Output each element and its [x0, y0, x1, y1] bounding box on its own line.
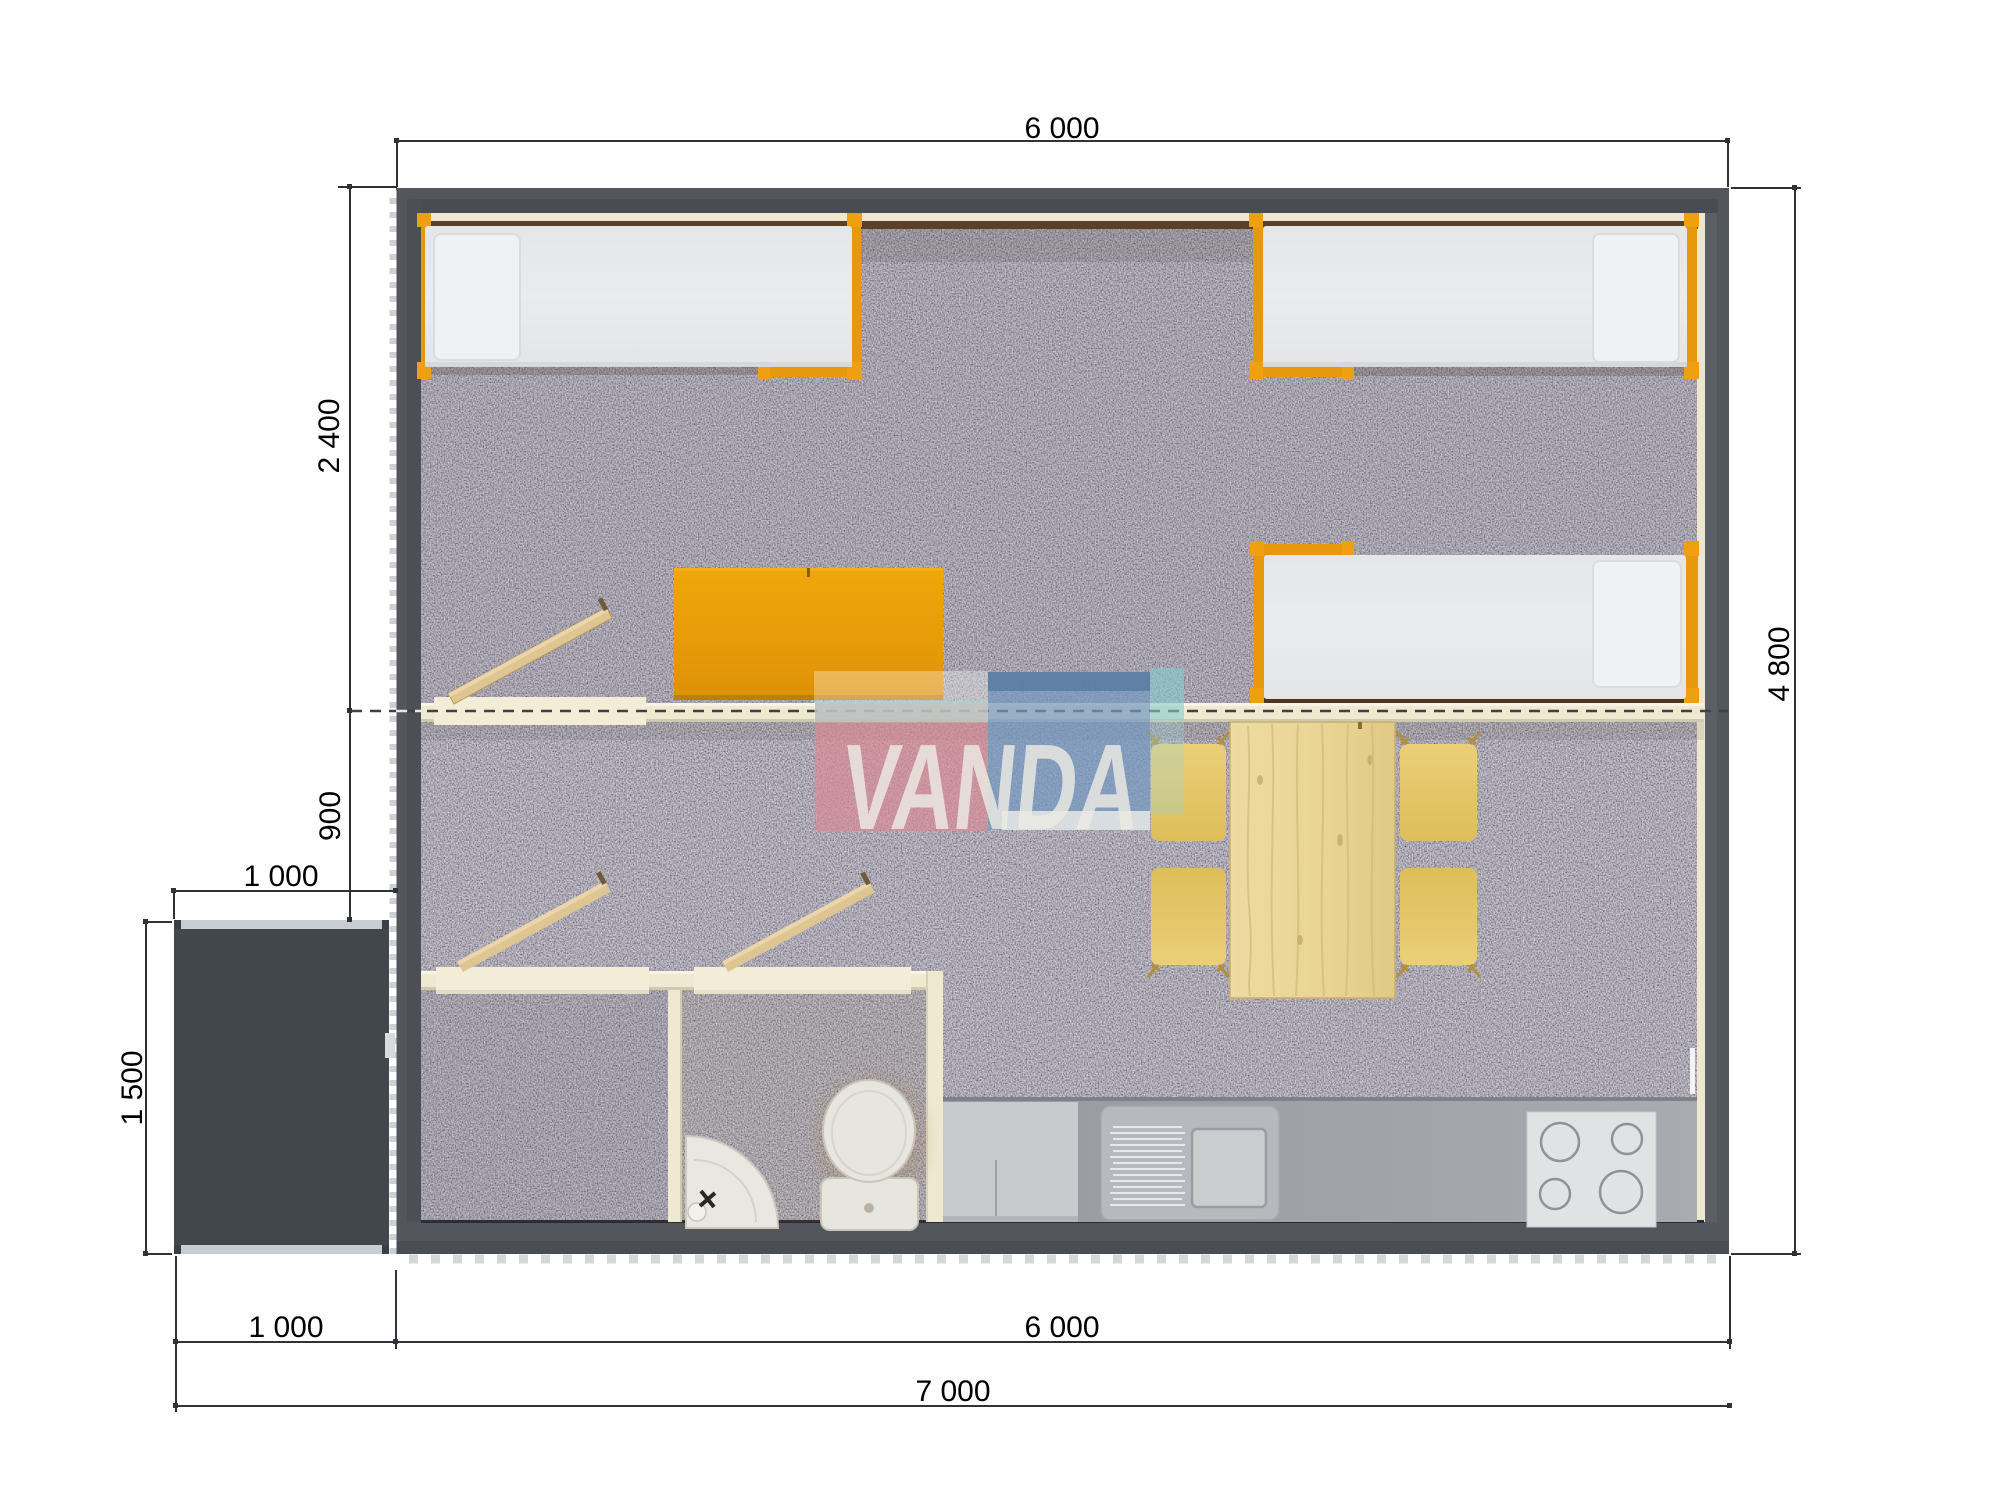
svg-text:1 500: 1 500 [116, 1050, 149, 1125]
svg-text:VANDA: VANDA [836, 719, 1147, 855]
svg-text:4 800: 4 800 [1763, 626, 1796, 701]
svg-text:1 000: 1 000 [248, 1311, 323, 1344]
svg-text:7 000: 7 000 [915, 1375, 990, 1408]
svg-text:6 000: 6 000 [1024, 1311, 1099, 1344]
svg-text:6 000: 6 000 [1024, 112, 1099, 145]
svg-text:1 000: 1 000 [243, 860, 318, 893]
svg-text:2 400: 2 400 [313, 398, 346, 473]
svg-text:900: 900 [314, 791, 347, 841]
